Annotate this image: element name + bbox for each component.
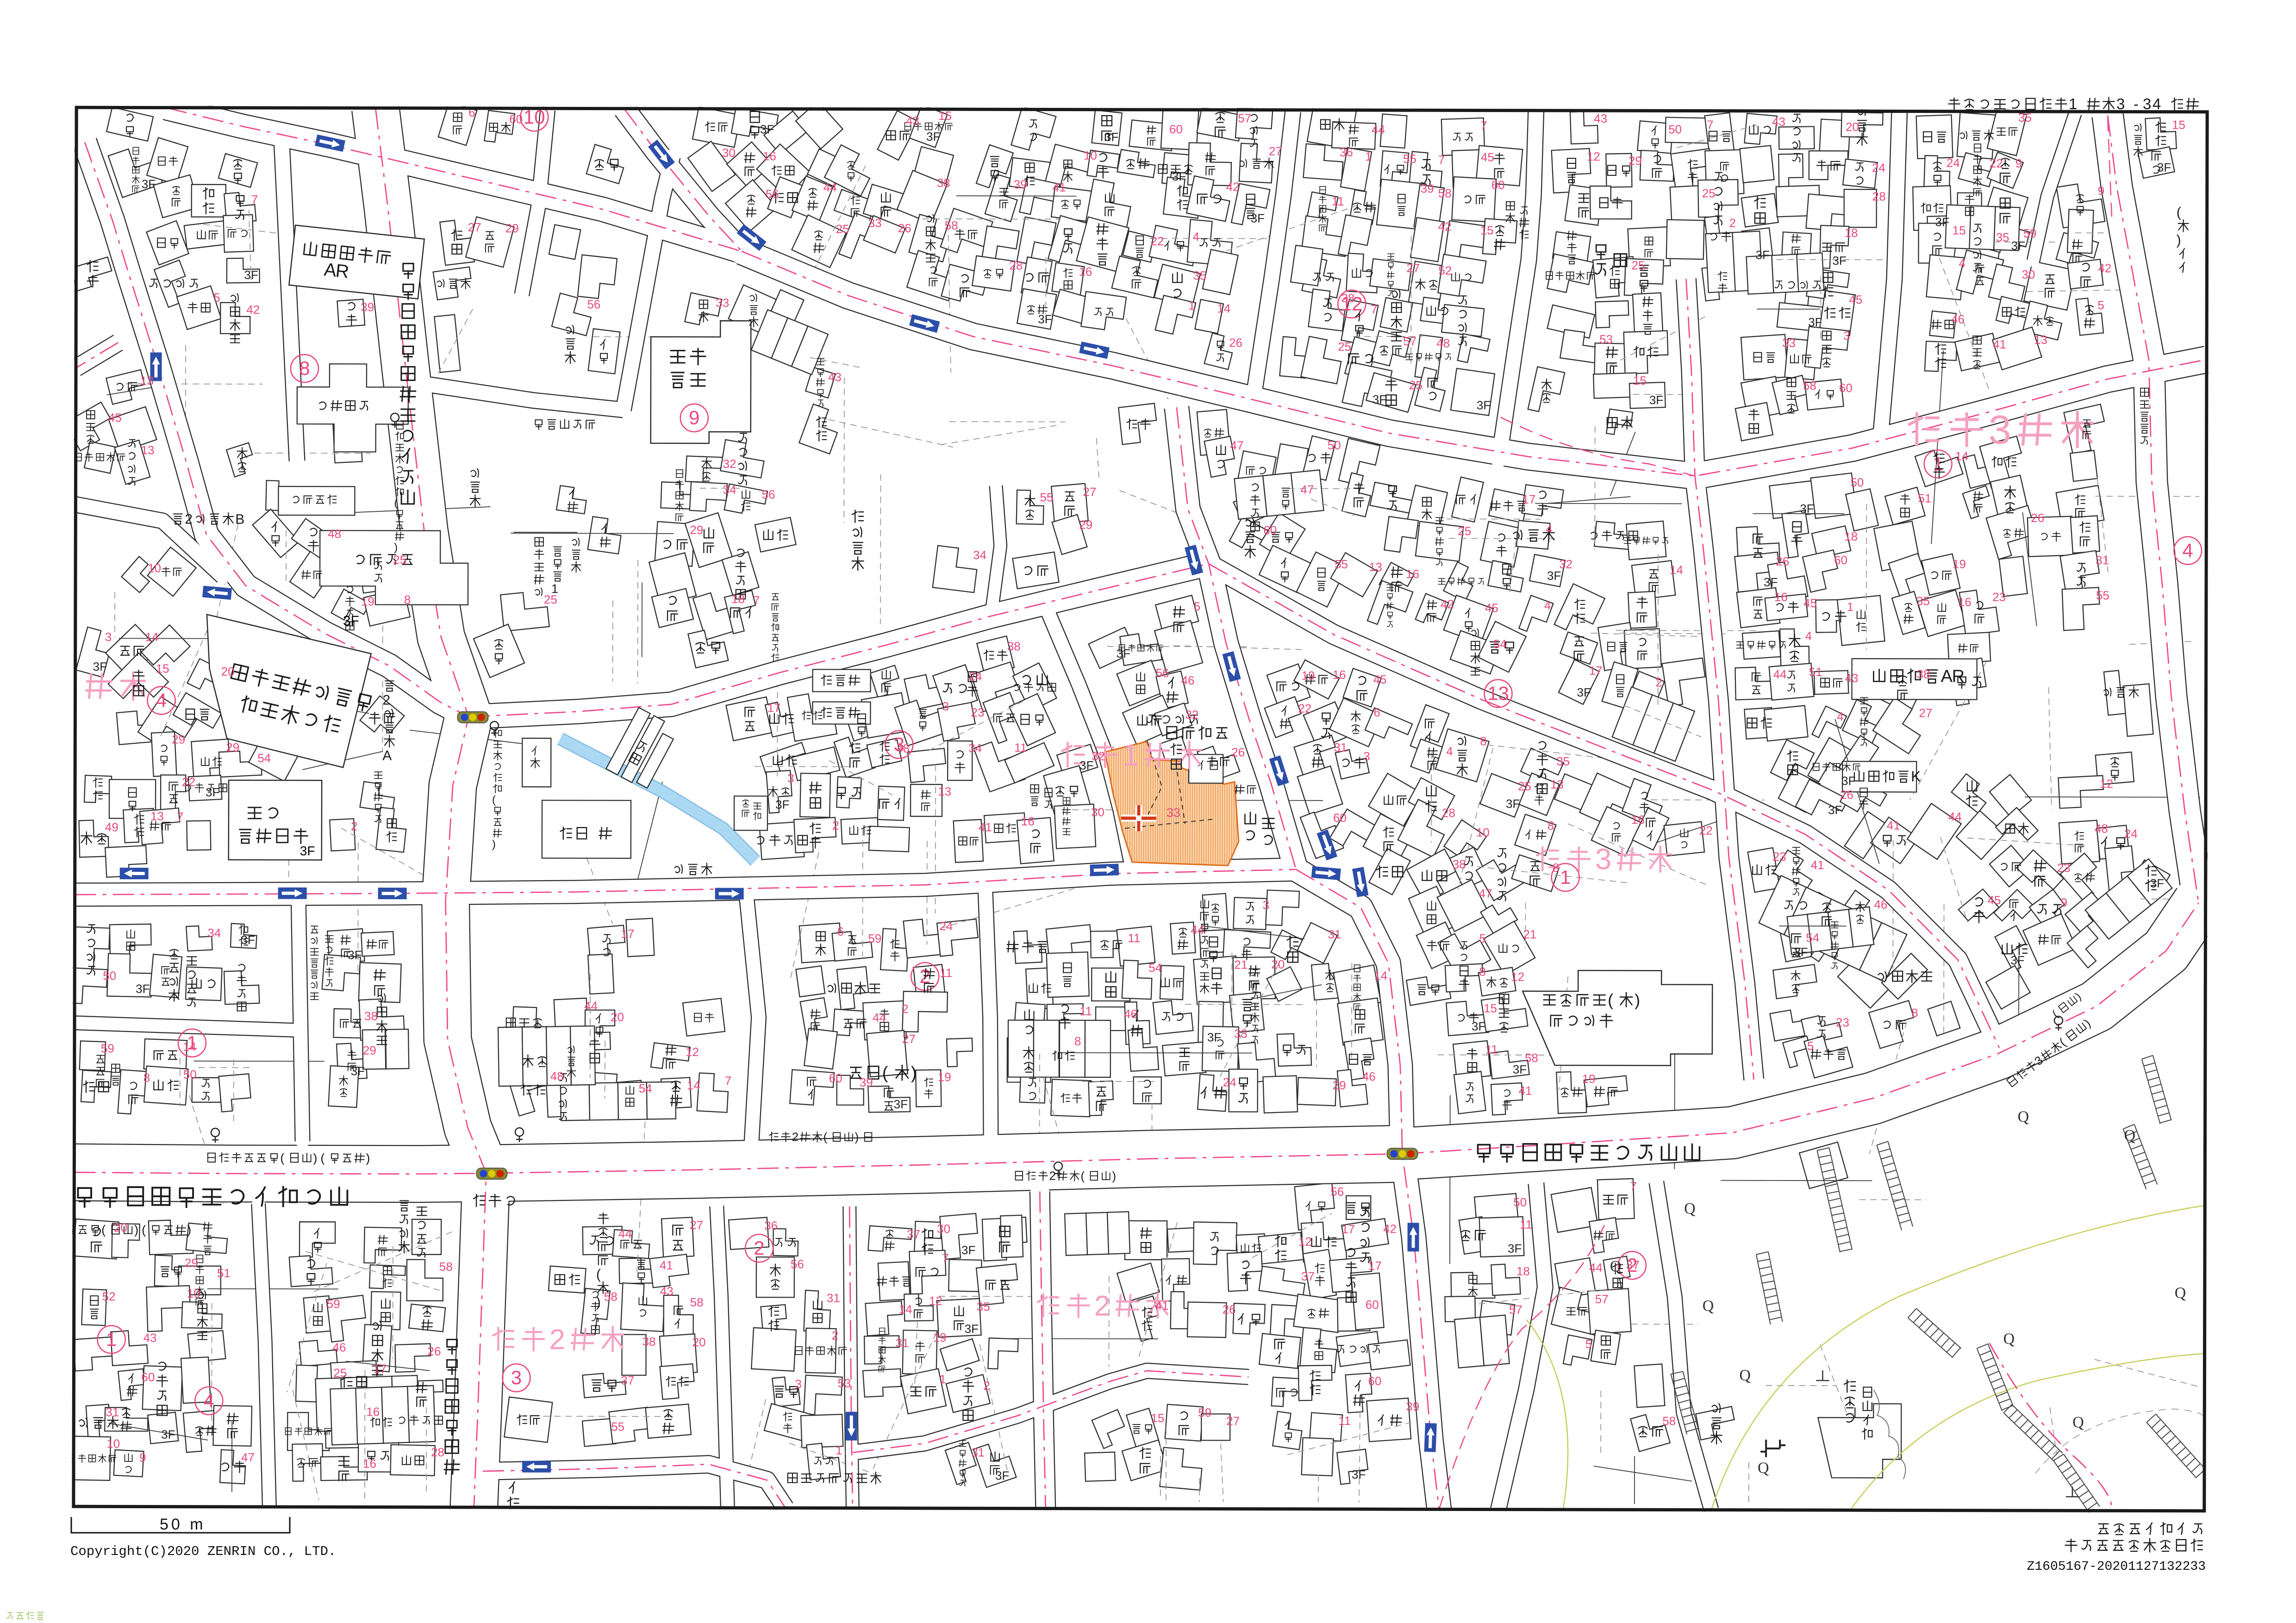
svg-text:5: 5 (1585, 1337, 1592, 1351)
svg-text:9: 9 (2061, 895, 2068, 909)
svg-text:29: 29 (1628, 154, 1642, 168)
svg-text:21: 21 (1234, 958, 1248, 971)
svg-text:1: 1 (1560, 866, 1571, 888)
svg-text:(: ( (280, 1151, 284, 1165)
svg-text:3: 3 (787, 771, 794, 785)
svg-text:34: 34 (973, 548, 986, 562)
svg-text:3F: 3F (136, 982, 150, 995)
svg-text:30: 30 (937, 1222, 950, 1236)
svg-text:20: 20 (611, 1010, 624, 1024)
svg-text:53: 53 (1599, 332, 1613, 346)
svg-text:5: 5 (2097, 298, 2104, 312)
svg-text:44: 44 (1948, 810, 1962, 824)
svg-text:3F: 3F (1472, 1019, 1485, 1033)
svg-text:51: 51 (1809, 665, 1822, 679)
svg-text:10: 10 (1476, 825, 1490, 839)
svg-text:4: 4 (2182, 540, 2193, 561)
svg-text:23: 23 (2057, 861, 2071, 875)
svg-text:57: 57 (1509, 1303, 1522, 1317)
svg-text:9: 9 (139, 1450, 146, 1464)
svg-text:59: 59 (327, 1297, 340, 1311)
svg-text:16: 16 (363, 1456, 376, 1470)
svg-text:(: ( (882, 1063, 888, 1083)
svg-text:20: 20 (114, 1220, 127, 1234)
svg-text:2: 2 (549, 1324, 566, 1356)
svg-text:24: 24 (1223, 1075, 1236, 1089)
svg-text:27: 27 (1919, 706, 1932, 720)
svg-text:33: 33 (868, 216, 882, 230)
svg-text:26: 26 (1840, 788, 1853, 802)
svg-text:42: 42 (1226, 180, 1240, 193)
svg-text:(: ( (492, 794, 496, 806)
svg-text:1: 1 (106, 1328, 117, 1350)
svg-text:18: 18 (731, 592, 745, 606)
svg-text:22: 22 (182, 775, 195, 789)
svg-text:3F: 3F (142, 177, 156, 191)
svg-text:29: 29 (226, 740, 239, 754)
svg-text:(: ( (1080, 1169, 1085, 1183)
svg-text:34: 34 (723, 483, 736, 497)
svg-text:7: 7 (753, 593, 760, 607)
svg-text:30: 30 (722, 146, 736, 160)
svg-text:60: 60 (829, 1071, 842, 1085)
svg-text:Q: Q (1739, 1367, 1751, 1384)
svg-text:43: 43 (1594, 112, 1607, 125)
svg-text:19: 19 (933, 1331, 947, 1344)
svg-text:59: 59 (2023, 226, 2037, 240)
svg-text:16: 16 (1079, 265, 1092, 279)
svg-text:4: 4 (1544, 598, 1551, 612)
svg-text:7: 7 (177, 810, 184, 824)
svg-text:31: 31 (827, 1291, 840, 1305)
svg-text:8: 8 (1553, 861, 1560, 875)
svg-text:4: 4 (204, 1390, 214, 1412)
svg-text:4: 4 (1193, 230, 1200, 243)
svg-text:A: A (1941, 667, 1953, 686)
svg-text:54: 54 (1806, 931, 1819, 945)
svg-text:15: 15 (1633, 373, 1647, 387)
svg-text:9: 9 (689, 407, 699, 429)
svg-text:19: 19 (1302, 669, 1315, 683)
svg-text:45: 45 (1988, 893, 2001, 907)
svg-text:11: 11 (1520, 1218, 1532, 1231)
svg-text:34: 34 (968, 741, 982, 755)
svg-text:57: 57 (1595, 1292, 1609, 1306)
svg-text:3F: 3F (1577, 685, 1591, 699)
svg-text:3F: 3F (93, 659, 107, 673)
svg-text:7: 7 (942, 1251, 949, 1265)
svg-text:43: 43 (660, 1284, 674, 1298)
svg-text:(: ( (394, 497, 398, 510)
svg-text:50 m: 50 m (160, 1516, 206, 1533)
svg-text:32: 32 (1185, 708, 1198, 721)
svg-text:47: 47 (241, 1450, 255, 1464)
svg-text:46: 46 (1362, 1070, 1376, 1083)
svg-text:16: 16 (1406, 567, 1419, 581)
svg-text:48: 48 (550, 1069, 564, 1083)
svg-text:): ) (1112, 1169, 1116, 1183)
svg-text:38: 38 (937, 176, 950, 190)
svg-text:5: 5 (1479, 931, 1486, 945)
svg-text:43: 43 (143, 1331, 157, 1344)
svg-text:Q: Q (1758, 1460, 1769, 1477)
svg-text:44: 44 (618, 1227, 632, 1241)
svg-text:25: 25 (1631, 258, 1645, 272)
svg-text:3F: 3F (760, 122, 774, 136)
svg-text:6: 6 (1373, 705, 1380, 719)
svg-text:46: 46 (1951, 312, 1965, 326)
svg-text:): ) (855, 1130, 859, 1144)
svg-text:5: 5 (1194, 599, 1201, 613)
svg-text:Q: Q (2124, 1127, 2135, 1144)
svg-text:(: ( (1608, 990, 1613, 1009)
svg-text:31: 31 (1334, 740, 1347, 754)
svg-text:32: 32 (1559, 557, 1572, 571)
svg-text:1: 1 (1122, 738, 1139, 772)
svg-text:14: 14 (687, 1078, 700, 1092)
svg-text:27: 27 (1269, 144, 1282, 158)
svg-text:): ) (187, 1223, 191, 1237)
svg-text:27: 27 (1226, 1414, 1240, 1428)
svg-text:17: 17 (1589, 664, 1603, 678)
svg-text:16: 16 (1333, 668, 1346, 682)
svg-text:(: ( (596, 1267, 601, 1282)
svg-text:8: 8 (1074, 1034, 1081, 1048)
svg-text:20: 20 (693, 1335, 706, 1349)
svg-text:): ) (2177, 233, 2181, 248)
svg-text:27: 27 (1083, 485, 1096, 499)
svg-text:1: 1 (1847, 600, 1854, 614)
svg-text:3: 3 (795, 1377, 802, 1391)
svg-text:43: 43 (1772, 115, 1785, 129)
svg-text:47: 47 (1479, 886, 1492, 900)
svg-text:31: 31 (896, 1336, 909, 1350)
svg-text:56: 56 (1330, 1185, 1344, 1199)
svg-text:13: 13 (938, 784, 951, 798)
svg-text:10: 10 (1084, 149, 1097, 162)
svg-text:2: 2 (1729, 216, 1736, 230)
svg-text:): ) (1635, 990, 1640, 1009)
svg-text:1: 1 (1188, 298, 1195, 312)
svg-text:24: 24 (1947, 156, 1960, 170)
svg-text:17: 17 (373, 1362, 387, 1375)
svg-text:15: 15 (1151, 1411, 1164, 1425)
svg-text:60: 60 (509, 112, 523, 126)
svg-text:32: 32 (1092, 749, 1105, 763)
svg-text:11: 11 (1079, 1004, 1092, 1018)
svg-text:31: 31 (106, 1405, 119, 1419)
svg-text:13: 13 (140, 373, 154, 387)
svg-text:44: 44 (824, 180, 837, 194)
svg-text:51: 51 (217, 1266, 231, 1280)
svg-text:59: 59 (1198, 1405, 1211, 1419)
svg-text:3: 3 (2143, 95, 2151, 112)
svg-text:56: 56 (791, 1257, 804, 1271)
svg-text:15: 15 (1484, 1001, 1497, 1015)
svg-text:50: 50 (103, 969, 116, 983)
svg-text:33: 33 (1234, 1026, 1248, 1040)
svg-text:25: 25 (393, 553, 406, 567)
svg-text:3: 3 (1363, 749, 1370, 763)
svg-text:38: 38 (1453, 857, 1466, 871)
svg-text:58: 58 (1662, 1414, 1676, 1428)
svg-text:41: 41 (979, 820, 992, 834)
svg-text:15: 15 (156, 662, 169, 676)
svg-text:2: 2 (185, 512, 193, 527)
svg-text:33: 33 (1167, 806, 1180, 820)
svg-text:3F: 3F (1755, 248, 1769, 262)
svg-text:15: 15 (2172, 118, 2185, 132)
svg-text:20: 20 (221, 665, 235, 678)
svg-text:53: 53 (837, 1376, 851, 1390)
svg-text:29: 29 (505, 221, 519, 235)
svg-text:3F: 3F (1373, 392, 1386, 406)
svg-text:60: 60 (1834, 553, 1847, 567)
svg-text:38: 38 (364, 1009, 378, 1023)
svg-text:14: 14 (183, 1040, 196, 1054)
svg-text:44: 44 (1191, 923, 1204, 937)
svg-text:17: 17 (1368, 1259, 1382, 1273)
svg-text:13: 13 (1369, 560, 1382, 574)
svg-text:2: 2 (902, 1002, 909, 1016)
svg-text:26: 26 (898, 221, 911, 235)
svg-text:20: 20 (1271, 958, 1285, 971)
svg-text:42: 42 (246, 303, 260, 317)
svg-text:58: 58 (1803, 379, 1816, 392)
svg-text:17: 17 (621, 927, 634, 941)
svg-text:28: 28 (1009, 258, 1023, 272)
svg-text:3F: 3F (2157, 161, 2171, 174)
svg-text:58: 58 (945, 218, 958, 232)
svg-text:42: 42 (1441, 597, 1454, 611)
svg-text:11: 11 (940, 966, 952, 980)
svg-text:35: 35 (977, 1300, 990, 1313)
svg-text:56: 56 (587, 297, 600, 311)
svg-text:18: 18 (1845, 226, 1858, 240)
svg-text:9: 9 (2015, 156, 2022, 170)
svg-text:Q: Q (1703, 1298, 1714, 1315)
svg-text:Q: Q (2072, 1414, 2084, 1431)
svg-text:41: 41 (1519, 1084, 1532, 1098)
svg-text:34: 34 (207, 926, 221, 940)
svg-text:58: 58 (439, 1260, 453, 1274)
svg-text:Q: Q (2175, 1285, 2186, 1302)
svg-text:3F: 3F (1841, 774, 1855, 788)
svg-text:37: 37 (907, 1227, 920, 1241)
svg-text:19: 19 (938, 1070, 951, 1084)
svg-text:14: 14 (1955, 449, 1969, 463)
svg-text:60: 60 (1491, 178, 1505, 192)
svg-text:15: 15 (1953, 224, 1966, 237)
svg-text:5: 5 (1807, 1039, 1814, 1053)
svg-text:14: 14 (1217, 301, 1230, 315)
svg-text:31: 31 (1328, 927, 1341, 941)
svg-text:38: 38 (1341, 291, 1354, 305)
svg-text:2: 2 (1094, 1290, 1111, 1322)
svg-text:43: 43 (906, 114, 919, 128)
svg-text:3: 3 (942, 699, 949, 713)
svg-text:43: 43 (828, 370, 842, 384)
svg-text:(: ( (823, 1130, 827, 1144)
svg-text:2: 2 (832, 1329, 839, 1343)
svg-text:33: 33 (1782, 336, 1796, 350)
svg-text:3: 3 (1595, 842, 1612, 876)
svg-text:14: 14 (1670, 563, 1683, 577)
svg-text:18: 18 (1516, 1264, 1530, 1278)
svg-text:3F: 3F (348, 948, 362, 962)
svg-text:7: 7 (1630, 1179, 1637, 1193)
svg-text:11: 11 (1338, 1414, 1351, 1428)
svg-text:8: 8 (1911, 1006, 1918, 1020)
svg-text:2: 2 (1049, 1169, 1056, 1183)
svg-text:28: 28 (431, 1445, 444, 1459)
svg-text:42: 42 (1383, 1222, 1397, 1236)
svg-text:39: 39 (1406, 1399, 1419, 1413)
svg-text:3F: 3F (1506, 797, 1520, 811)
svg-text:12: 12 (929, 1294, 942, 1308)
svg-text:3F: 3F (995, 1468, 1009, 1482)
svg-text:58: 58 (1525, 1051, 1538, 1065)
svg-text:5: 5 (213, 291, 220, 305)
svg-text:46: 46 (1181, 673, 1195, 687)
svg-text:14: 14 (899, 1302, 912, 1316)
svg-text:14: 14 (145, 630, 159, 644)
svg-text:35: 35 (1996, 230, 2009, 244)
svg-text:15: 15 (1480, 224, 1494, 237)
svg-text:25: 25 (1409, 378, 1423, 392)
svg-text:32: 32 (723, 457, 736, 471)
svg-text:25: 25 (1518, 779, 1531, 793)
svg-text:46: 46 (333, 1340, 346, 1354)
svg-text:3F: 3F (206, 785, 219, 799)
svg-text:-: - (2134, 95, 2139, 112)
svg-text:45: 45 (1373, 672, 1387, 686)
svg-text:3F: 3F (1352, 1468, 1366, 1481)
svg-text:3F: 3F (351, 1064, 365, 1078)
svg-text:38: 38 (1007, 639, 1021, 653)
svg-text:44: 44 (873, 1011, 886, 1025)
svg-text:3F: 3F (961, 1243, 975, 1257)
svg-text:60: 60 (1368, 1374, 1381, 1388)
svg-text:3: 3 (1263, 898, 1270, 912)
svg-text:): ) (313, 1151, 317, 1165)
svg-text:21: 21 (1523, 927, 1536, 941)
svg-text:3F: 3F (2011, 239, 2025, 253)
svg-text:(: ( (2177, 205, 2181, 220)
svg-text:3F: 3F (1117, 647, 1130, 660)
svg-text:46: 46 (1124, 1007, 1137, 1021)
svg-text:20: 20 (1846, 120, 1859, 134)
svg-text:30: 30 (1091, 805, 1104, 819)
svg-text:2: 2 (351, 819, 358, 833)
svg-text:3F: 3F (244, 268, 258, 282)
svg-text:14: 14 (1374, 969, 1387, 983)
svg-text:7: 7 (1371, 302, 1378, 316)
svg-text:10: 10 (148, 561, 161, 575)
svg-text:48: 48 (328, 527, 341, 541)
svg-text:41: 41 (1993, 337, 2006, 351)
svg-text:): ) (492, 838, 496, 851)
svg-text:22: 22 (1298, 702, 1311, 715)
svg-text:19: 19 (1953, 557, 1966, 571)
svg-text:24: 24 (969, 669, 982, 683)
svg-text:3F: 3F (1794, 945, 1808, 959)
svg-text:3F: 3F (1800, 502, 1814, 516)
svg-text:31: 31 (2096, 553, 2109, 567)
svg-text:60: 60 (1263, 523, 1277, 537)
svg-text:2: 2 (832, 819, 839, 833)
svg-text:19: 19 (361, 594, 374, 608)
svg-text:47: 47 (1300, 483, 1314, 497)
svg-text:41: 41 (1155, 1299, 1169, 1312)
svg-text:44: 44 (1589, 1261, 1603, 1275)
svg-text:37: 37 (1626, 1258, 1640, 1272)
svg-text:3F: 3F (1172, 169, 1186, 183)
svg-text:45: 45 (1849, 292, 1862, 306)
svg-text:46: 46 (1874, 897, 1888, 911)
svg-text:26: 26 (2031, 511, 2044, 525)
svg-text:2: 2 (792, 1130, 799, 1144)
svg-text:38: 38 (1917, 667, 1930, 681)
svg-text:Z1605167-20201127132233: Z1605167-20201127132233 (2027, 1560, 2206, 1574)
svg-text:33: 33 (716, 296, 729, 310)
svg-text:2: 2 (983, 1379, 990, 1393)
svg-text:23: 23 (1992, 590, 2006, 604)
svg-text:3F: 3F (1764, 575, 1778, 589)
svg-text:3F: 3F (926, 130, 940, 143)
svg-text:25: 25 (1458, 524, 1471, 538)
svg-text:31: 31 (971, 1445, 985, 1459)
svg-text:8: 8 (1547, 819, 1554, 833)
svg-text:3F: 3F (965, 1322, 979, 1336)
svg-text:23: 23 (971, 705, 984, 719)
svg-text:3F: 3F (241, 933, 255, 947)
svg-text:55: 55 (611, 1420, 624, 1434)
svg-text:12: 12 (1587, 149, 1600, 163)
svg-text:55: 55 (1403, 152, 1416, 166)
svg-text:29: 29 (172, 733, 185, 746)
svg-text:22: 22 (1990, 156, 2003, 170)
svg-text:3F: 3F (2150, 877, 2164, 890)
svg-text:41: 41 (660, 1258, 673, 1272)
svg-text:36: 36 (1340, 145, 1353, 159)
svg-text:): ) (366, 1151, 370, 1165)
svg-text:Copyright(C)2020 ZENRIN CO., L: Copyright(C)2020 ZENRIN CO., LTD. (70, 1544, 336, 1559)
svg-text:7: 7 (1707, 118, 1714, 132)
svg-text:7: 7 (1480, 119, 1487, 133)
svg-text:44: 44 (584, 999, 598, 1013)
svg-text:16: 16 (763, 149, 776, 163)
svg-text:7: 7 (1438, 153, 1445, 167)
svg-text:54: 54 (1493, 637, 1507, 651)
svg-text:29: 29 (690, 523, 703, 537)
svg-text:39: 39 (860, 1076, 873, 1089)
svg-text:37: 37 (621, 1374, 634, 1387)
svg-text:60: 60 (1839, 381, 1853, 395)
svg-text:17: 17 (1522, 492, 1535, 506)
svg-text:29: 29 (185, 1256, 198, 1270)
svg-text:3F: 3F (1207, 1030, 1221, 1044)
svg-text:60: 60 (1169, 122, 1183, 136)
svg-text:3F: 3F (1038, 312, 1052, 326)
svg-text:48: 48 (1436, 336, 1450, 350)
svg-text:11: 11 (1014, 740, 1027, 754)
svg-text:): ) (394, 541, 398, 554)
svg-text:4: 4 (1546, 522, 1553, 536)
svg-text:45: 45 (1485, 601, 1498, 615)
svg-text:2: 2 (754, 1237, 764, 1259)
svg-text:16: 16 (366, 1405, 380, 1418)
